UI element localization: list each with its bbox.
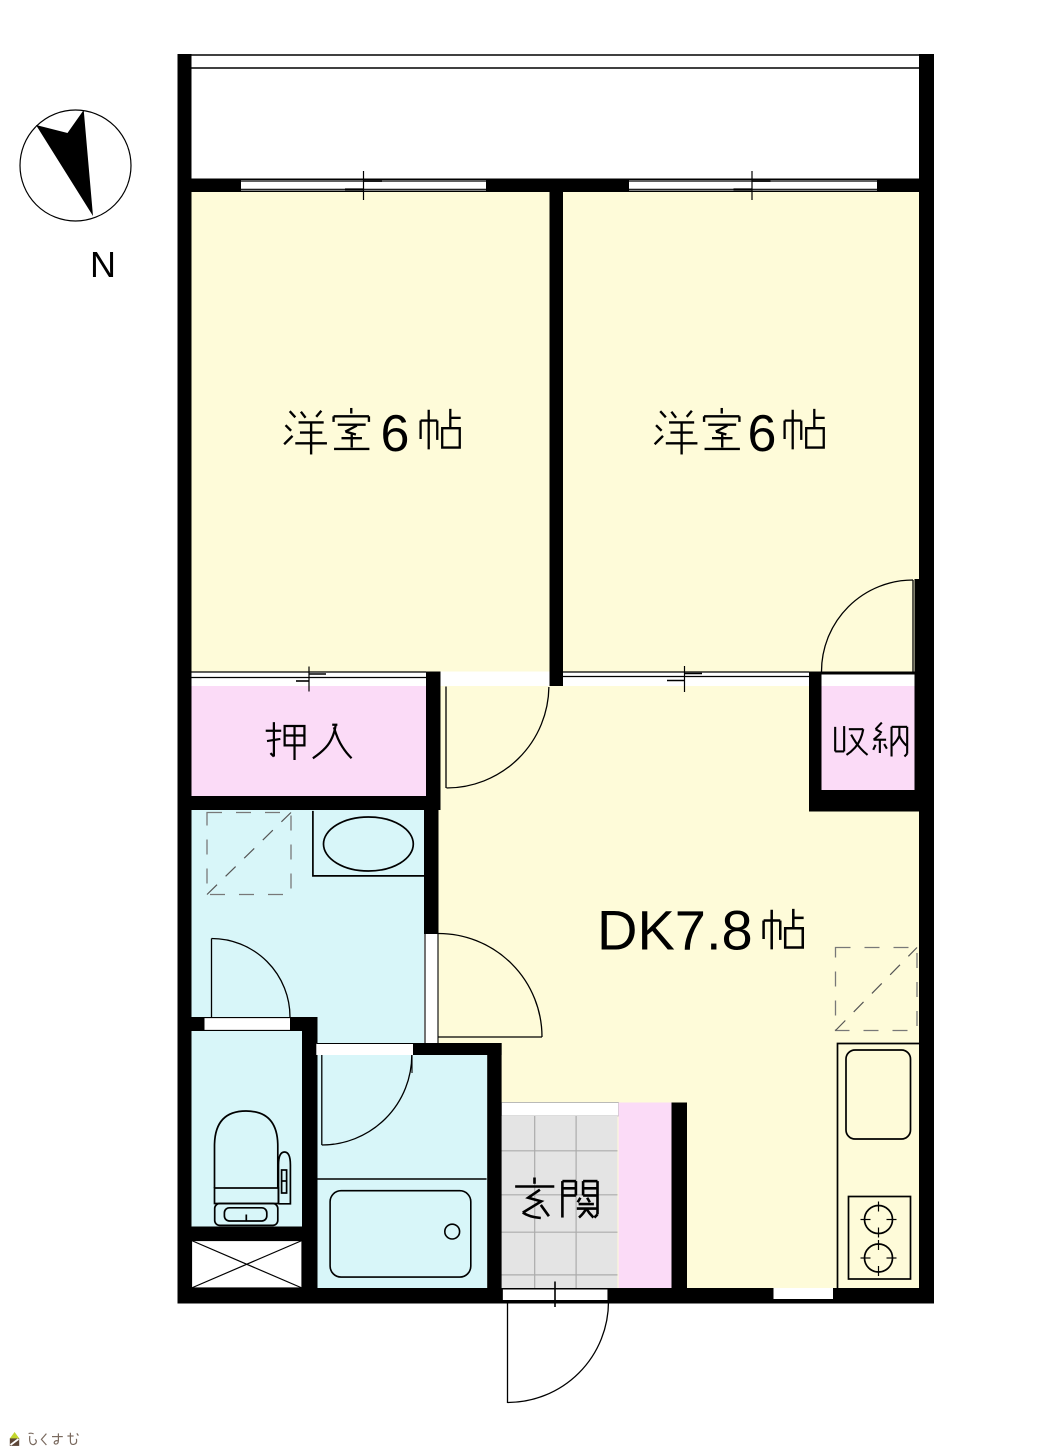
svg-text:6: 6 <box>381 405 410 463</box>
svg-text:6: 6 <box>748 405 777 463</box>
svg-text:DK7.8: DK7.8 <box>597 899 753 962</box>
svg-text:N: N <box>90 244 116 285</box>
